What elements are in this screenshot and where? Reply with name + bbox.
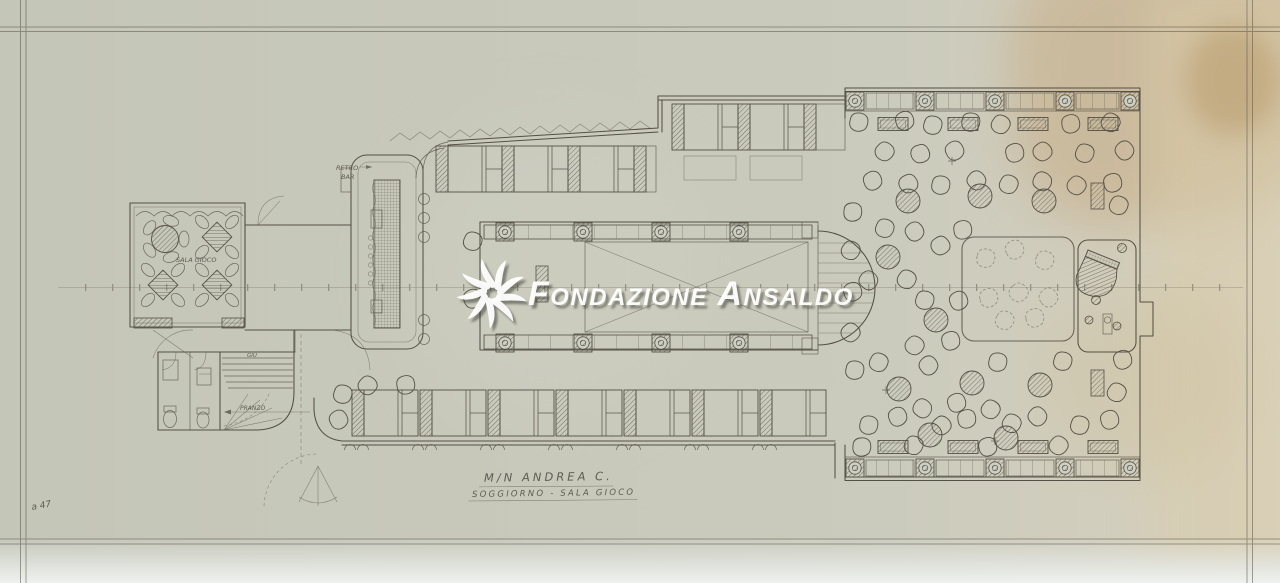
game-table <box>193 261 241 309</box>
stool <box>1113 322 1121 330</box>
radiator <box>222 318 244 328</box>
svg-text:BAR: BAR <box>341 173 354 181</box>
armchair <box>395 374 416 395</box>
game-room: SALA GIOCO <box>130 203 245 358</box>
door-arc <box>162 352 206 370</box>
table <box>948 118 978 131</box>
arrow-icon <box>366 165 372 169</box>
bar-bottles <box>368 236 372 285</box>
armchair <box>326 407 351 432</box>
toilets <box>158 330 295 430</box>
bar-label: RETRO BAR <box>336 164 372 181</box>
bar-counter <box>374 180 400 328</box>
watermark: Fondazione Ansaldo Fondazione Ansaldo <box>456 259 856 333</box>
staircase: GIÙ PRANZO <box>222 352 310 430</box>
wc <box>164 411 177 428</box>
round-table <box>1028 373 1052 397</box>
title-block: M/N ANDREA C. SOGGIORNO - SALA GIOCO <box>468 469 637 502</box>
sketched-armchairs <box>975 237 1061 332</box>
hull-bottom-wall <box>314 398 835 478</box>
deck-plan-drawing: SALA GIOCO <box>0 0 1280 583</box>
game-room-label: SALA GIOCO <box>176 256 216 264</box>
table <box>1088 441 1118 454</box>
table <box>878 118 908 131</box>
round-table <box>924 308 948 332</box>
round-table <box>887 377 911 401</box>
svg-text:RETRO: RETRO <box>336 164 358 172</box>
game-table <box>193 213 241 261</box>
piano-platform <box>1071 240 1136 352</box>
radiator <box>134 318 172 328</box>
washbasin <box>197 368 211 385</box>
arrow-icon <box>224 410 231 415</box>
round-table <box>960 371 984 395</box>
ship-name: M/N ANDREA C. <box>484 469 613 485</box>
drawing-sheet: SALA GIOCO <box>0 0 1280 583</box>
hull-top-wall <box>448 96 845 145</box>
game-table <box>139 261 187 309</box>
stool <box>1085 316 1093 324</box>
round-table <box>994 426 1018 450</box>
table <box>1091 183 1104 209</box>
stool <box>1118 244 1127 253</box>
curtain-scallops <box>136 212 243 217</box>
drawing-title: SOGGIORNO - SALA GIOCO <box>472 488 635 500</box>
round-table <box>918 423 942 447</box>
door-fan <box>264 454 337 506</box>
corner-annotation: a 47 <box>31 500 53 513</box>
washbasin <box>163 360 178 380</box>
round-table <box>1032 189 1056 213</box>
grand-piano <box>1071 250 1122 303</box>
armchair <box>461 230 484 253</box>
wc <box>197 412 209 428</box>
stool <box>1092 296 1101 305</box>
watermark-text: Fondazione Ansaldo <box>528 275 854 313</box>
pinwheel-icon <box>456 259 527 329</box>
bar-stools <box>419 194 430 345</box>
svg-text:PRANZO: PRANZO <box>240 405 265 412</box>
table <box>1018 118 1048 131</box>
right-lounge <box>838 88 1153 481</box>
round-table <box>876 245 900 269</box>
bar-area: RETRO BAR <box>336 142 448 349</box>
table <box>1091 370 1104 396</box>
table <box>1018 441 1048 454</box>
table <box>878 441 908 454</box>
stairs-destination: PRANZO <box>224 405 310 415</box>
table <box>948 441 978 454</box>
stairs-down-label: GIÙ <box>247 352 257 359</box>
door-swing <box>153 330 193 358</box>
armchair <box>332 383 354 405</box>
